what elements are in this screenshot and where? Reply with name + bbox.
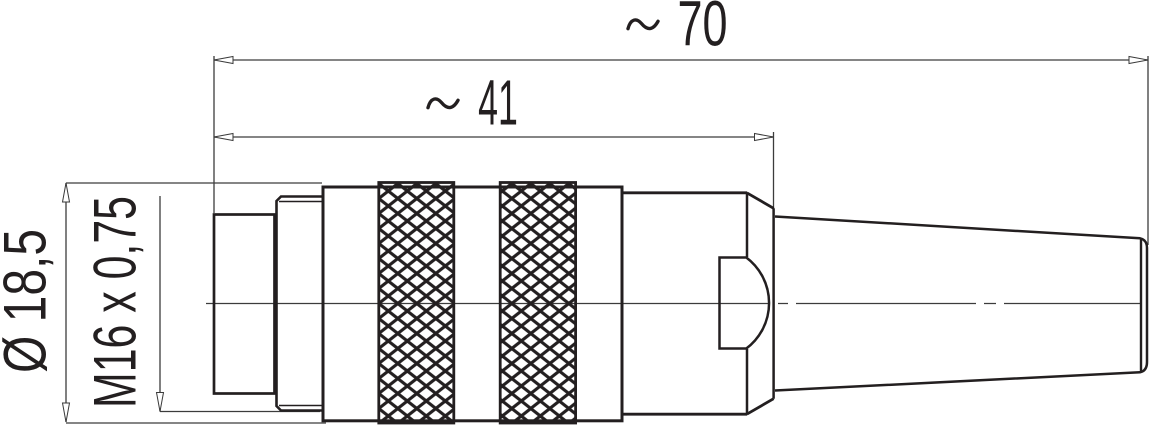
svg-text:M16 x 0,75: M16 x 0,75 <box>83 196 150 408</box>
svg-text:70: 70 <box>677 0 727 59</box>
svg-text:Ø 18,5: Ø 18,5 <box>0 229 59 373</box>
svg-text:41: 41 <box>478 66 518 138</box>
